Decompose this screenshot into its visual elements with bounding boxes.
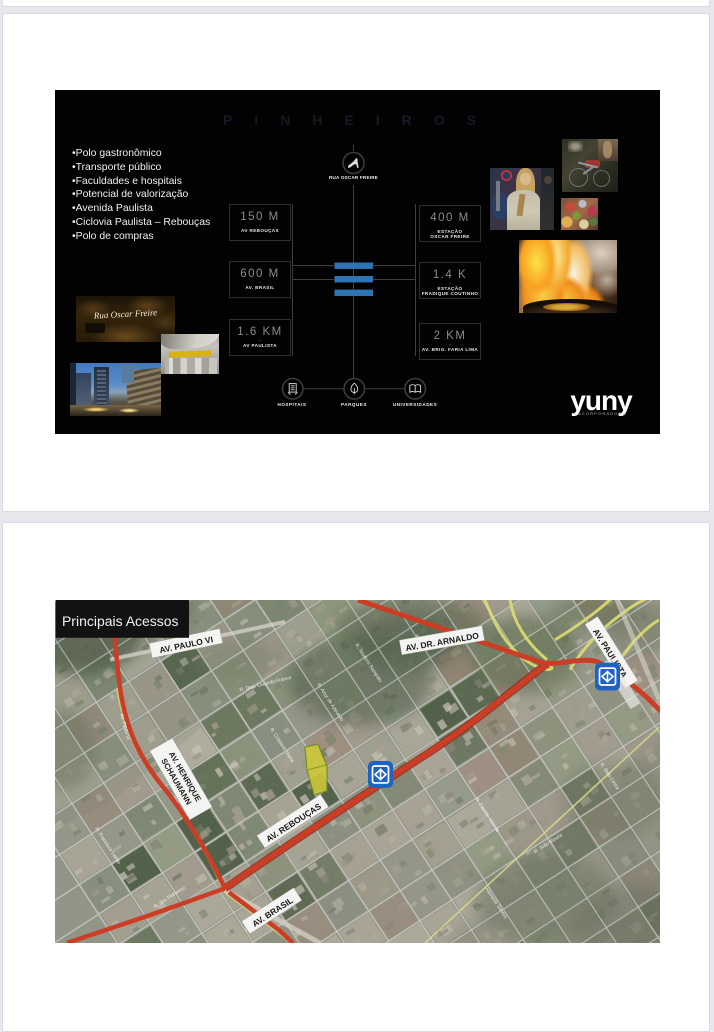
svg-text:Principais Acessos: Principais Acessos [62,613,179,629]
